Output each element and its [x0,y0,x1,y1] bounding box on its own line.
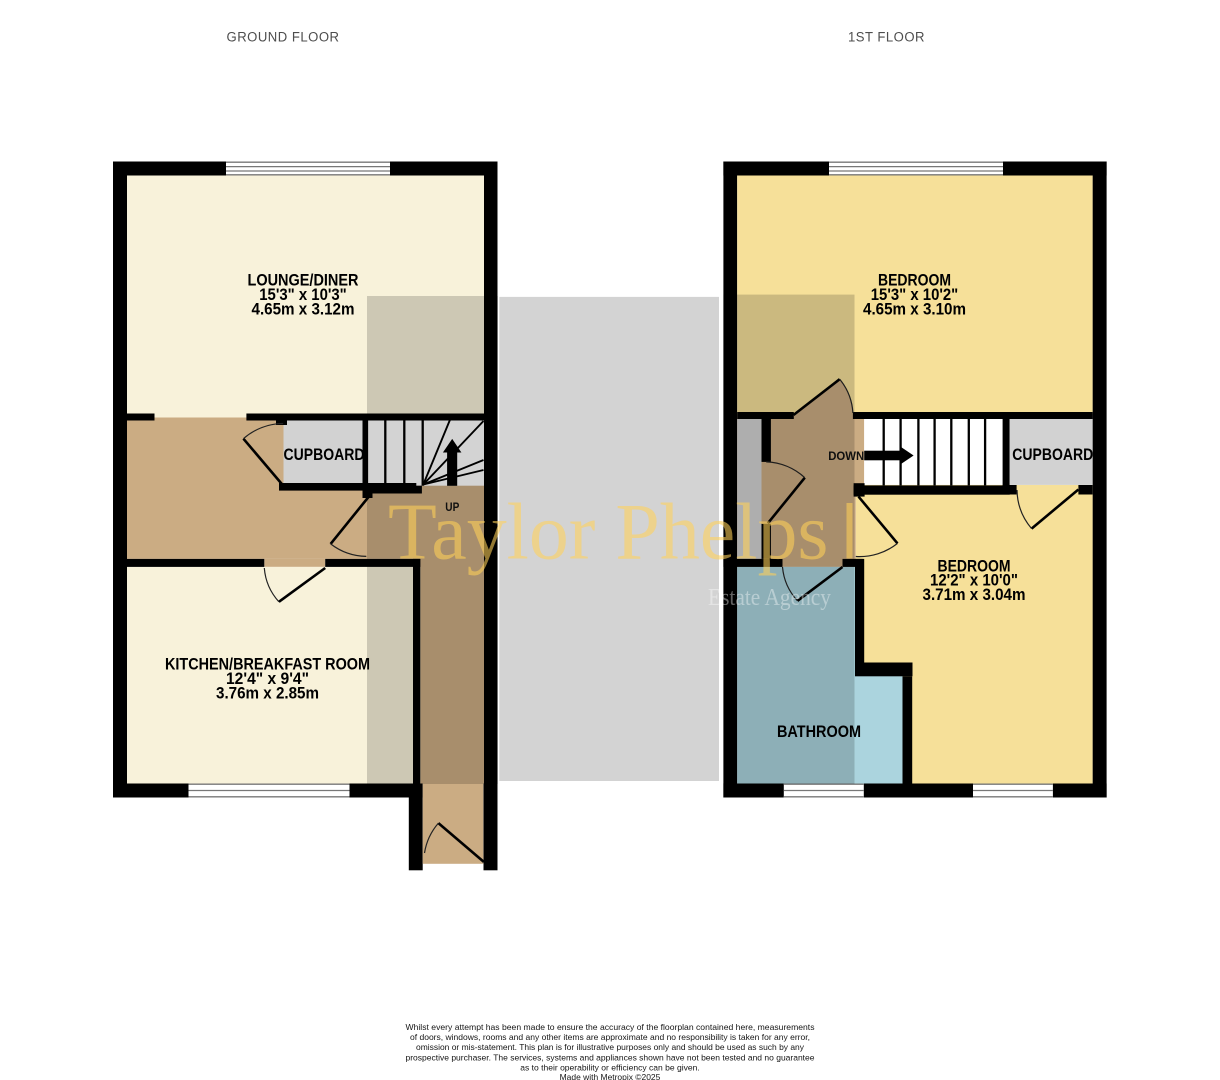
svg-text:1ST FLOOR: 1ST FLOOR [848,30,925,45]
svg-text:Whilst every attempt has been: Whilst every attempt has been made to en… [406,1022,815,1032]
svg-text:of doors, windows, rooms and a: of doors, windows, rooms and any other i… [410,1032,810,1042]
svg-text:GROUND FLOOR: GROUND FLOOR [227,30,340,45]
svg-text:CUPBOARD: CUPBOARD [284,446,365,464]
svg-text:3.76m x 2.85m: 3.76m x 2.85m [216,684,319,702]
svg-text:3.71m x 3.04m: 3.71m x 3.04m [923,586,1026,604]
svg-text:Estate Agency: Estate Agency [708,585,831,611]
svg-text:4.65m x 3.12m: 4.65m x 3.12m [252,301,355,319]
svg-text:Made with Metropix ©2025: Made with Metropix ©2025 [560,1072,661,1080]
svg-text:4.65m x 3.10m: 4.65m x 3.10m [863,301,966,319]
svg-text:Taylor Phelps: Taylor Phelps [388,489,829,577]
svg-text:CUPBOARD: CUPBOARD [1012,446,1093,464]
svg-text:omission or mis-statement. Thi: omission or mis-statement. This plan is … [416,1042,805,1052]
svg-text:prospective purchaser. The ser: prospective purchaser. The services, sys… [406,1052,815,1062]
